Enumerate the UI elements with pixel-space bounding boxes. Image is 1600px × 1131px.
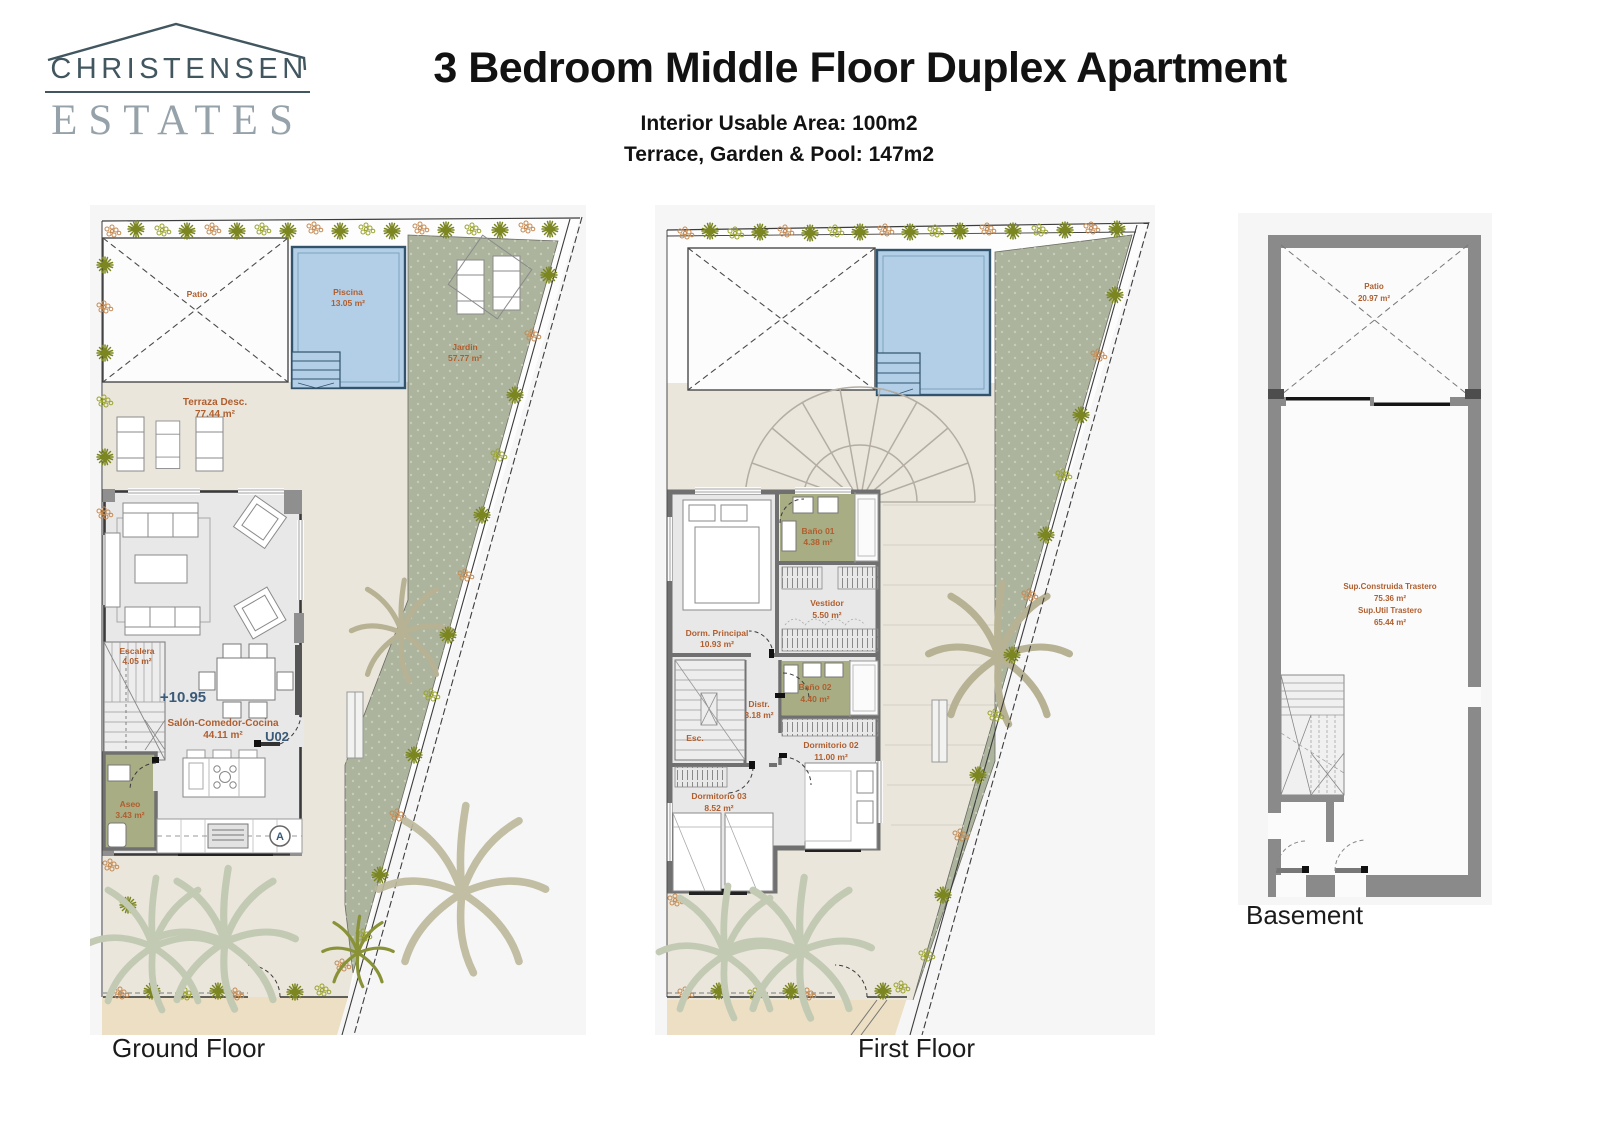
label-distr-area: 3.18 m² <box>744 710 773 720</box>
label-salon: Salón-Comedor-Cocina <box>167 718 279 729</box>
label-section-a: A <box>276 831 284 843</box>
page-title: 3 Bedroom Middle Floor Duplex Apartment <box>385 44 1335 93</box>
label-patio: Patio <box>187 289 208 299</box>
label-bano2: Baño 02 <box>798 682 831 692</box>
subtitle-interior-area: Interior Usable Area: 100m2 <box>300 112 1258 136</box>
label-trastero-3: Sup.Util Trastero <box>1358 606 1422 615</box>
label-dorm-principal-area: 10.93 m² <box>700 639 734 649</box>
stairs <box>675 660 745 760</box>
floor-plan-sheet: CHRISTENSEN ESTATES 3 Bedroom Middle Flo… <box>0 0 1600 1131</box>
label-dorm3: Dormitorio 03 <box>691 791 747 801</box>
basement-structure <box>1268 242 1481 898</box>
label-piscina-area: 13.05 m² <box>331 298 365 308</box>
label-trastero-1: Sup.Construida Trastero <box>1343 582 1436 591</box>
ground-floor-plan: Patio Piscina 13.05 m² Jardin 57.77 m² T… <box>90 205 586 1035</box>
sun-lounger <box>457 260 484 314</box>
first-pool <box>877 250 990 395</box>
label-bano1-area: 4.38 m² <box>803 537 832 547</box>
sliding-door <box>295 645 302 715</box>
first-floor-caption: First Floor <box>858 1033 975 1064</box>
brand-logo: CHRISTENSEN ESTATES <box>45 20 313 170</box>
sliding-door <box>1374 403 1450 407</box>
sun-lounger <box>493 256 520 310</box>
label-aseo: Aseo <box>120 799 141 809</box>
label-dorm-principal: Dorm. Principal <box>686 628 749 638</box>
label-jardin: Jardin <box>452 342 478 352</box>
label-dorm2: Dormitorio 02 <box>803 740 859 750</box>
label-salon-area: 44.11 m² <box>203 730 243 741</box>
label-bano2-area: 4.40 m² <box>800 694 829 704</box>
ground-floor-caption: Ground Floor <box>112 1033 265 1064</box>
kitchen-island <box>183 750 265 797</box>
label-aseo-area: 3.43 m² <box>115 810 144 820</box>
stairs <box>1281 675 1344 795</box>
first-void <box>688 248 875 390</box>
label-unit: U02 <box>265 729 289 744</box>
label-vestidor-area: 5.50 m² <box>812 610 841 620</box>
label-basement-patio: Patio <box>1364 282 1384 291</box>
logo-divider <box>45 91 310 93</box>
sun-lounger <box>196 417 223 471</box>
label-distr: Distr. <box>748 699 769 709</box>
label-piscina: Piscina <box>333 287 363 297</box>
sliding-door <box>1286 397 1370 401</box>
door-leaf <box>1276 868 1306 873</box>
label-terraza-area: 77.44 m² <box>195 409 236 420</box>
sun-lounger <box>156 421 180 469</box>
sun-lounger <box>117 417 144 471</box>
bed-double <box>683 500 771 610</box>
label-trastero-4: 65.44 m² <box>1374 618 1406 627</box>
basement-plan: Patio 20.97 m² Sup.Construida Trastero 7… <box>1238 213 1492 913</box>
ground-patio <box>103 238 288 382</box>
coffee-table <box>135 555 187 583</box>
label-escalera: Escalera <box>120 646 155 656</box>
label-escalera-area: 4.05 m² <box>122 656 151 666</box>
label-vestidor: Vestidor <box>810 598 844 608</box>
logo-text-christensen: CHRISTENSEN <box>45 53 313 86</box>
ground-pool <box>292 247 405 388</box>
label-bano1: Baño 01 <box>801 526 834 536</box>
subtitle-exterior-area: Terrace, Garden & Pool: 147m2 <box>300 143 1258 167</box>
label-dorm2-area: 11.00 m² <box>814 752 848 762</box>
label-terraza: Terraza Desc. <box>183 397 248 408</box>
logo-text-estates: ESTATES <box>45 96 310 145</box>
label-dorm3-area: 8.52 m² <box>704 803 733 813</box>
label-trastero-2: 75.36 m² <box>1374 594 1406 603</box>
ground-walkway <box>102 997 348 1035</box>
first-house <box>665 487 883 895</box>
label-esc: Esc. <box>686 733 704 743</box>
label-level: +10.95 <box>160 689 206 706</box>
basement-caption: Basement <box>1246 900 1363 931</box>
first-walkway <box>667 998 907 1035</box>
label-basement-patio-area: 20.97 m² <box>1358 294 1390 303</box>
label-jardin-area: 57.77 m² <box>448 353 482 363</box>
first-floor-plan: Dorm. Principal 10.93 m² Baño 01 4.38 m²… <box>655 205 1155 1035</box>
